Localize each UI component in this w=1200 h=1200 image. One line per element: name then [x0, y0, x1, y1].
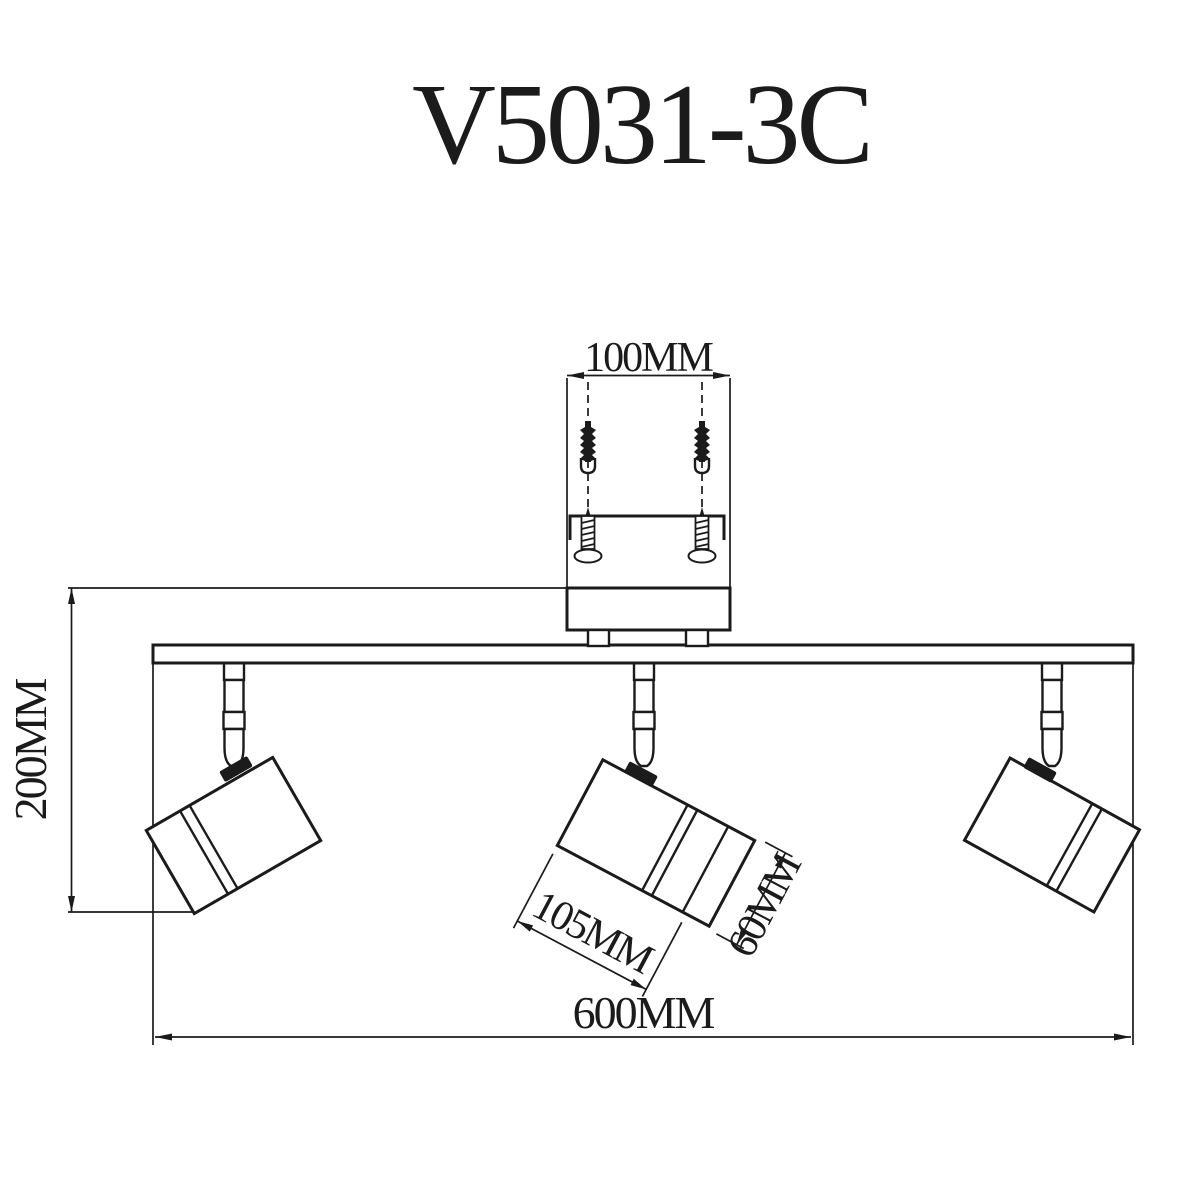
wall-plug-icon: [580, 421, 596, 462]
arrowhead-up-icon: [68, 588, 75, 604]
technical-drawing-page: V5031-3C 100MM 200MM 600MM: [0, 0, 1200, 1200]
wall-anchor-right: [694, 382, 710, 512]
screw-tip-icon: [700, 507, 705, 516]
arrowhead-right-icon: [713, 372, 730, 379]
head-body: [557, 760, 754, 926]
canopy-box: [567, 588, 730, 630]
stem-segment: [635, 680, 654, 712]
fixture-dimension-diagram: V5031-3C 100MM 200MM 600MM: [0, 0, 1200, 1200]
stem-ring: [634, 712, 655, 729]
screw-tip-icon: [586, 507, 591, 516]
arrowhead-down-icon: [68, 896, 75, 912]
stem-right: [1042, 663, 1063, 766]
stem-segment: [1042, 663, 1062, 680]
dimension-105mm-label: 105MM: [525, 882, 661, 983]
stem-segment: [225, 680, 244, 712]
stem-ring: [1042, 712, 1063, 729]
arrowhead-right-icon: [1114, 1034, 1131, 1041]
arrowhead-left-icon: [155, 1034, 172, 1041]
screw-head: [689, 550, 716, 563]
stem-left: [224, 663, 245, 766]
stem-segment: [1043, 680, 1062, 712]
stem-lower: [1043, 729, 1062, 766]
stem-segment: [634, 663, 654, 680]
stem-lower: [635, 729, 654, 766]
mounting-bar: [153, 645, 1133, 663]
wall-anchor-left: [580, 382, 596, 512]
stem-ring: [224, 712, 245, 729]
canopy-foot-right: [686, 630, 708, 646]
screw-head: [575, 550, 602, 563]
dimension-200mm: 200MM: [5, 588, 567, 912]
spotlight-head-left: [146, 757, 320, 913]
dimension-200mm-label: 200MM: [5, 679, 56, 821]
wall-plug-icon: [694, 421, 710, 462]
spotlight-head-middle: [557, 760, 754, 926]
canopy-foot-left: [588, 630, 609, 646]
arrowhead-left-icon: [567, 372, 584, 379]
dimension-100mm-label: 100MM: [584, 335, 713, 381]
head-body: [146, 757, 320, 913]
model-number-title: V5031-3C: [412, 61, 870, 189]
stem-segment: [224, 663, 244, 680]
stem-middle: [634, 663, 655, 766]
